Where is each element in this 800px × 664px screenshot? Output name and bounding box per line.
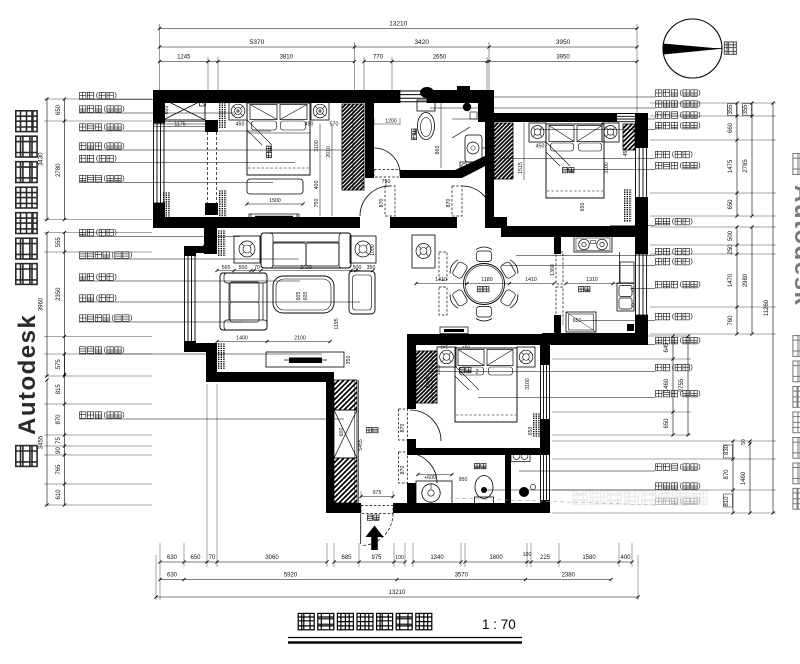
svg-text:1245: 1245	[177, 55, 191, 61]
svg-text:2400: 2400	[300, 265, 312, 271]
svg-text:605: 605	[303, 292, 309, 301]
svg-text:1500: 1500	[269, 198, 281, 204]
svg-text:3455: 3455	[39, 435, 45, 449]
svg-text:3420: 3420	[415, 39, 430, 46]
svg-text:75: 75	[56, 437, 62, 444]
svg-text:3100: 3100	[525, 378, 531, 390]
svg-text:860: 860	[435, 146, 441, 155]
svg-text:450: 450	[236, 122, 245, 128]
svg-text:685: 685	[341, 555, 352, 561]
svg-text:2780: 2780	[56, 163, 62, 177]
svg-text:1340: 1340	[430, 555, 444, 561]
svg-text:1800: 1800	[489, 555, 503, 561]
svg-text:3950: 3950	[556, 55, 570, 61]
svg-text:3060: 3060	[265, 555, 279, 561]
svg-text:1460: 1460	[664, 378, 670, 392]
svg-text:645: 645	[664, 342, 670, 353]
svg-text:3950: 3950	[556, 39, 571, 46]
svg-text:2100: 2100	[294, 336, 306, 342]
svg-text:870: 870	[379, 199, 385, 208]
svg-text:2755: 2755	[679, 378, 685, 392]
svg-text:650: 650	[56, 104, 62, 115]
svg-text:500: 500	[728, 230, 734, 241]
svg-text:3430: 3430	[39, 152, 45, 166]
svg-text:13210: 13210	[389, 590, 406, 596]
svg-text:1460: 1460	[741, 471, 747, 485]
svg-text:1470: 1470	[728, 273, 734, 287]
svg-text:950: 950	[459, 477, 468, 483]
svg-text:815: 815	[56, 384, 62, 395]
svg-text:870: 870	[56, 414, 62, 425]
svg-text:1200: 1200	[385, 119, 397, 125]
svg-text:575: 575	[56, 359, 62, 370]
svg-text:650: 650	[664, 418, 670, 429]
svg-text:Autodesk: Autodesk	[789, 185, 800, 306]
svg-text:650: 650	[728, 199, 734, 210]
svg-text:1580: 1580	[582, 555, 596, 561]
svg-text:70: 70	[209, 555, 216, 561]
svg-text:650: 650	[573, 318, 582, 324]
svg-text:5370: 5370	[250, 39, 265, 46]
svg-text:355: 355	[728, 104, 734, 115]
svg-text:770: 770	[373, 55, 384, 61]
svg-text:355: 355	[743, 104, 749, 115]
svg-text:550: 550	[409, 488, 415, 497]
svg-text:450: 450	[536, 144, 545, 150]
svg-text:450: 450	[305, 122, 314, 128]
svg-text:3100: 3100	[604, 162, 610, 174]
svg-text:870: 870	[724, 469, 730, 480]
svg-text:1310: 1310	[586, 277, 598, 283]
svg-text:870: 870	[400, 466, 406, 475]
svg-text:350: 350	[346, 356, 352, 365]
svg-text:13210: 13210	[389, 21, 407, 28]
svg-text:2785: 2785	[743, 159, 749, 173]
svg-text:565: 565	[222, 265, 231, 271]
svg-text:630: 630	[167, 573, 178, 579]
svg-text:1400: 1400	[236, 336, 248, 342]
svg-text:100: 100	[395, 555, 404, 561]
svg-text:650: 650	[528, 427, 534, 436]
svg-text:650: 650	[190, 555, 201, 561]
svg-text:1 : 70: 1 : 70	[482, 617, 516, 632]
svg-text:870: 870	[446, 199, 452, 208]
svg-text:750: 750	[314, 199, 320, 208]
svg-text:1195: 1195	[334, 318, 340, 329]
svg-text:1475: 1475	[728, 159, 734, 173]
svg-text:90: 90	[56, 447, 62, 454]
svg-text:555: 555	[56, 237, 62, 248]
svg-text:975: 975	[371, 555, 382, 561]
svg-text:2650: 2650	[433, 55, 447, 61]
svg-text:2980: 2980	[743, 273, 749, 287]
svg-text:630: 630	[167, 555, 178, 561]
svg-text:250: 250	[728, 244, 734, 255]
svg-text:600: 600	[339, 428, 345, 437]
svg-text:1000: 1000	[370, 244, 376, 256]
svg-text:1410: 1410	[435, 277, 447, 283]
svg-text:830: 830	[724, 444, 730, 455]
svg-text:5920: 5920	[284, 573, 298, 579]
svg-text:660: 660	[728, 122, 734, 133]
svg-text:1360: 1360	[550, 264, 556, 276]
svg-text:70: 70	[254, 265, 260, 271]
svg-text:1515: 1515	[518, 162, 524, 174]
svg-text:765: 765	[56, 464, 62, 475]
svg-text:400: 400	[314, 181, 320, 190]
svg-text:350: 350	[367, 265, 376, 271]
svg-text:225: 225	[540, 555, 551, 561]
svg-text:975: 975	[373, 490, 382, 496]
svg-text:3570: 3570	[455, 573, 469, 579]
svg-text:1450: 1450	[436, 364, 442, 375]
svg-text:870: 870	[400, 424, 406, 433]
svg-text:610: 610	[56, 489, 62, 500]
svg-text:50: 50	[741, 439, 747, 445]
svg-text:2350: 2350	[56, 287, 62, 301]
svg-text:+600: +600	[424, 475, 436, 481]
svg-text:2380: 2380	[562, 573, 576, 579]
svg-text:5455: 5455	[358, 439, 364, 451]
svg-text:1465: 1465	[426, 376, 432, 388]
svg-text:3810: 3810	[280, 55, 294, 61]
svg-text:450: 450	[623, 148, 629, 157]
svg-text:3960: 3960	[39, 297, 45, 311]
svg-text:11260: 11260	[764, 299, 770, 316]
svg-text:500: 500	[239, 265, 248, 271]
svg-text:760: 760	[728, 315, 734, 326]
svg-text:570: 570	[330, 122, 339, 128]
svg-text:605: 605	[296, 292, 302, 301]
svg-text:400: 400	[620, 555, 631, 561]
svg-text:2010: 2010	[326, 146, 332, 158]
svg-text:650: 650	[580, 203, 586, 212]
svg-text:Autodesk: Autodesk	[14, 314, 41, 435]
svg-text:105: 105	[440, 345, 448, 351]
svg-text:500: 500	[353, 265, 362, 271]
svg-text:1175: 1175	[174, 122, 185, 128]
svg-text:+50: +50	[462, 345, 470, 351]
svg-text:1410: 1410	[525, 277, 537, 283]
svg-text:810: 810	[724, 496, 730, 507]
svg-text:1180: 1180	[481, 277, 492, 283]
